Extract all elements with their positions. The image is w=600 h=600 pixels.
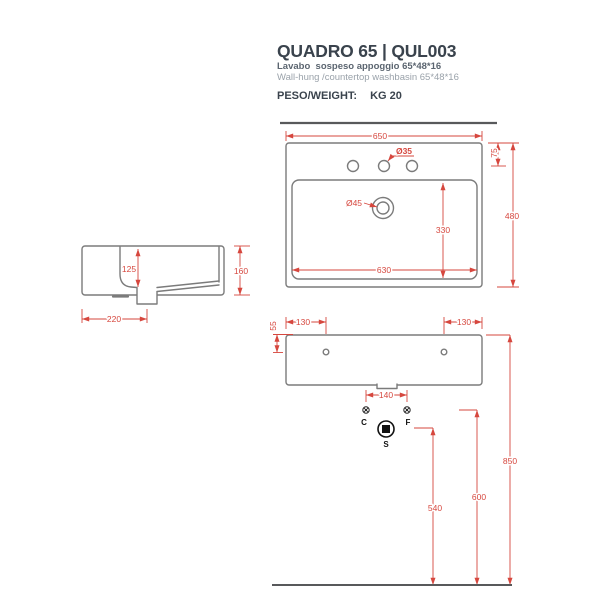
faucet-hole-right <box>407 161 418 172</box>
faucet-hole-left <box>348 161 359 172</box>
dim-height: 160 <box>234 246 250 295</box>
dim-140-label: 140 <box>379 390 393 400</box>
technical-drawing: 650 Ø35 Ø45 330 <box>0 0 600 600</box>
dim-630-label: 630 <box>377 265 391 275</box>
dim-supply-height: 600 <box>459 410 486 585</box>
front-view: 130 130 55 140 <box>268 317 517 585</box>
mount-hole-right <box>441 349 447 355</box>
dim-850-label: 850 <box>503 456 517 466</box>
dim-d45-label: Ø45 <box>346 198 362 208</box>
dim-overall-depth: 480 <box>497 143 519 287</box>
basin-outline-front <box>286 335 482 385</box>
dim-hole-inset-left: 130 <box>286 317 326 334</box>
dim-160-label: 160 <box>234 266 248 276</box>
dim-130-right-label: 130 <box>457 317 471 327</box>
dim-overall-width: 650 <box>286 131 482 141</box>
mount-hole-left <box>323 349 329 355</box>
dim-hole-inset-right: 130 <box>444 317 482 334</box>
cold-label: F <box>406 418 411 427</box>
top-view: 650 Ø35 Ø45 330 <box>280 123 519 287</box>
side-view: 125 160 220 <box>82 246 250 324</box>
dim-55-label: 55 <box>268 321 278 331</box>
dim-480-label: 480 <box>505 211 519 221</box>
dim-supply-spacing: 140 <box>366 390 407 402</box>
faucet-hole-center <box>379 161 390 172</box>
dim-650-label: 650 <box>373 131 387 141</box>
dim-220-label: 220 <box>107 314 121 324</box>
dim-drain-offset: 220 <box>82 309 147 324</box>
drain-label: S <box>383 440 389 449</box>
dim-130-left-label: 130 <box>296 317 310 327</box>
dim-125-label: 125 <box>122 264 136 274</box>
hot-water-symbol <box>363 407 369 413</box>
dim-faucet-offset: 75 <box>488 143 519 166</box>
dim-540-label: 540 <box>428 503 442 513</box>
dim-rim-height: 850 <box>486 335 517 585</box>
waste-drain-symbol <box>378 421 394 437</box>
basin-outline-side <box>82 246 224 295</box>
dim-d35-label: Ø35 <box>396 146 412 156</box>
dim-75-label: 75 <box>489 148 499 158</box>
dim-330-label: 330 <box>436 225 450 235</box>
hot-label: C <box>361 418 367 427</box>
datasheet-page: QUADRO 65 | QUL003 Lavabo sospeso appogg… <box>0 0 600 600</box>
dim-600-label: 600 <box>472 492 486 502</box>
dim-drain-height: 540 <box>414 428 442 585</box>
cold-water-symbol <box>404 407 410 413</box>
front-drain-stub <box>377 384 397 389</box>
